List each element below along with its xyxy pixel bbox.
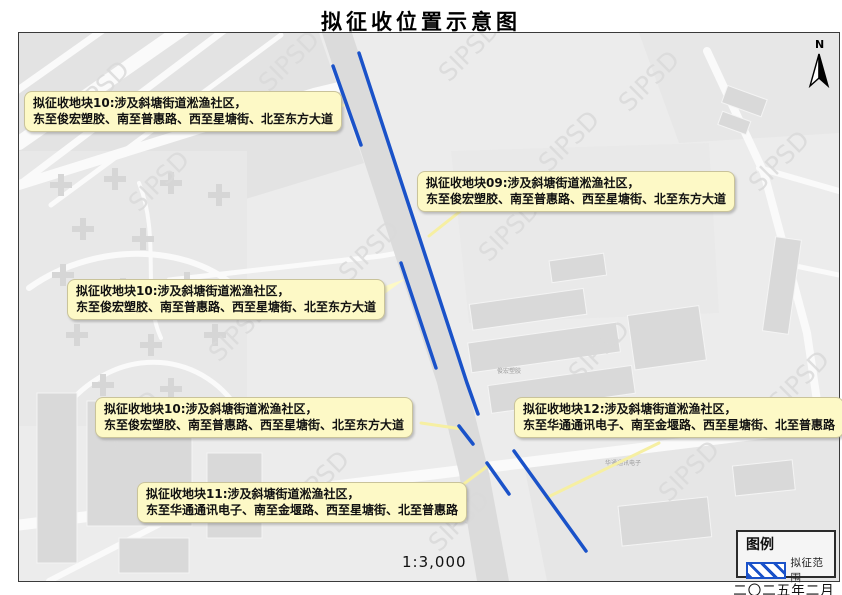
callout-line2: 东至俊宏塑胶、南至普惠路、西至星塘街、北至东方大道 (76, 299, 376, 315)
callout-line1: 拟征收地块10:涉及斜塘街道淞渔社区， (104, 401, 404, 417)
callout-line2: 东至俊宏塑胶、南至普惠路、西至星塘街、北至东方大道 (33, 111, 333, 127)
callout-line1: 拟征收地块10:涉及斜塘街道淞渔社区， (76, 283, 376, 299)
callout-parcel-10-middle: 拟征收地块10:涉及斜塘街道淞渔社区， 东至俊宏塑胶、南至普惠路、西至星塘街、北… (67, 279, 385, 320)
scale-label: 1:3,000 (402, 553, 467, 571)
callout-line2: 东至俊宏塑胶、南至普惠路、西至星塘街、北至东方大道 (104, 417, 404, 433)
callout-parcel-10-north: 拟征收地块10:涉及斜塘街道淞渔社区， 东至俊宏塑胶、南至普惠路、西至星塘街、北… (24, 91, 342, 132)
schematic-page: 拟征收位置示意图 (0, 0, 842, 595)
callout-parcel-12: 拟征收地块12:涉及斜塘街道淞渔社区， 东至华通通讯电子、南至金堰路、西至星塘街… (514, 397, 842, 438)
callout-line1: 拟征收地块12:涉及斜塘街道淞渔社区， (523, 401, 835, 417)
callout-line2: 东至俊宏塑胶、南至普惠路、西至星塘街、北至东方大道 (426, 191, 726, 207)
callout-line1: 拟征收地块11:涉及斜塘街道淞渔社区， (146, 486, 458, 502)
callout-parcel-11: 拟征收地块11:涉及斜塘街道淞渔社区， 东至华通通讯电子、南至金堰路、西至星塘街… (137, 482, 467, 523)
date-label: 二〇二五年二月 (726, 579, 842, 595)
legend-box: 图例 拟征范围 (736, 530, 836, 578)
blue-hatch-swatch-icon (746, 562, 786, 579)
callout-line1: 拟征收地块09:涉及斜塘街道淞渔社区， (426, 175, 726, 191)
legend-title: 图例 (746, 534, 834, 554)
callout-line2: 东至华通通讯电子、南至金堰路、西至星塘街、北至普惠路 (523, 417, 835, 433)
callout-parcel-09: 拟征收地块09:涉及斜塘街道淞渔社区， 东至俊宏塑胶、南至普惠路、西至星塘街、北… (417, 171, 735, 212)
callout-line1: 拟征收地块10:涉及斜塘街道淞渔社区， (33, 95, 333, 111)
callout-parcel-10-south: 拟征收地块10:涉及斜塘街道淞渔社区， 东至俊宏塑胶、南至普惠路、西至星塘街、北… (95, 397, 413, 438)
north-label: N (815, 38, 824, 51)
callout-line2: 东至华通通讯电子、南至金堰路、西至星塘街、北至普惠路 (146, 502, 458, 518)
building-label-junhong: 俊宏塑胶 (497, 367, 521, 375)
